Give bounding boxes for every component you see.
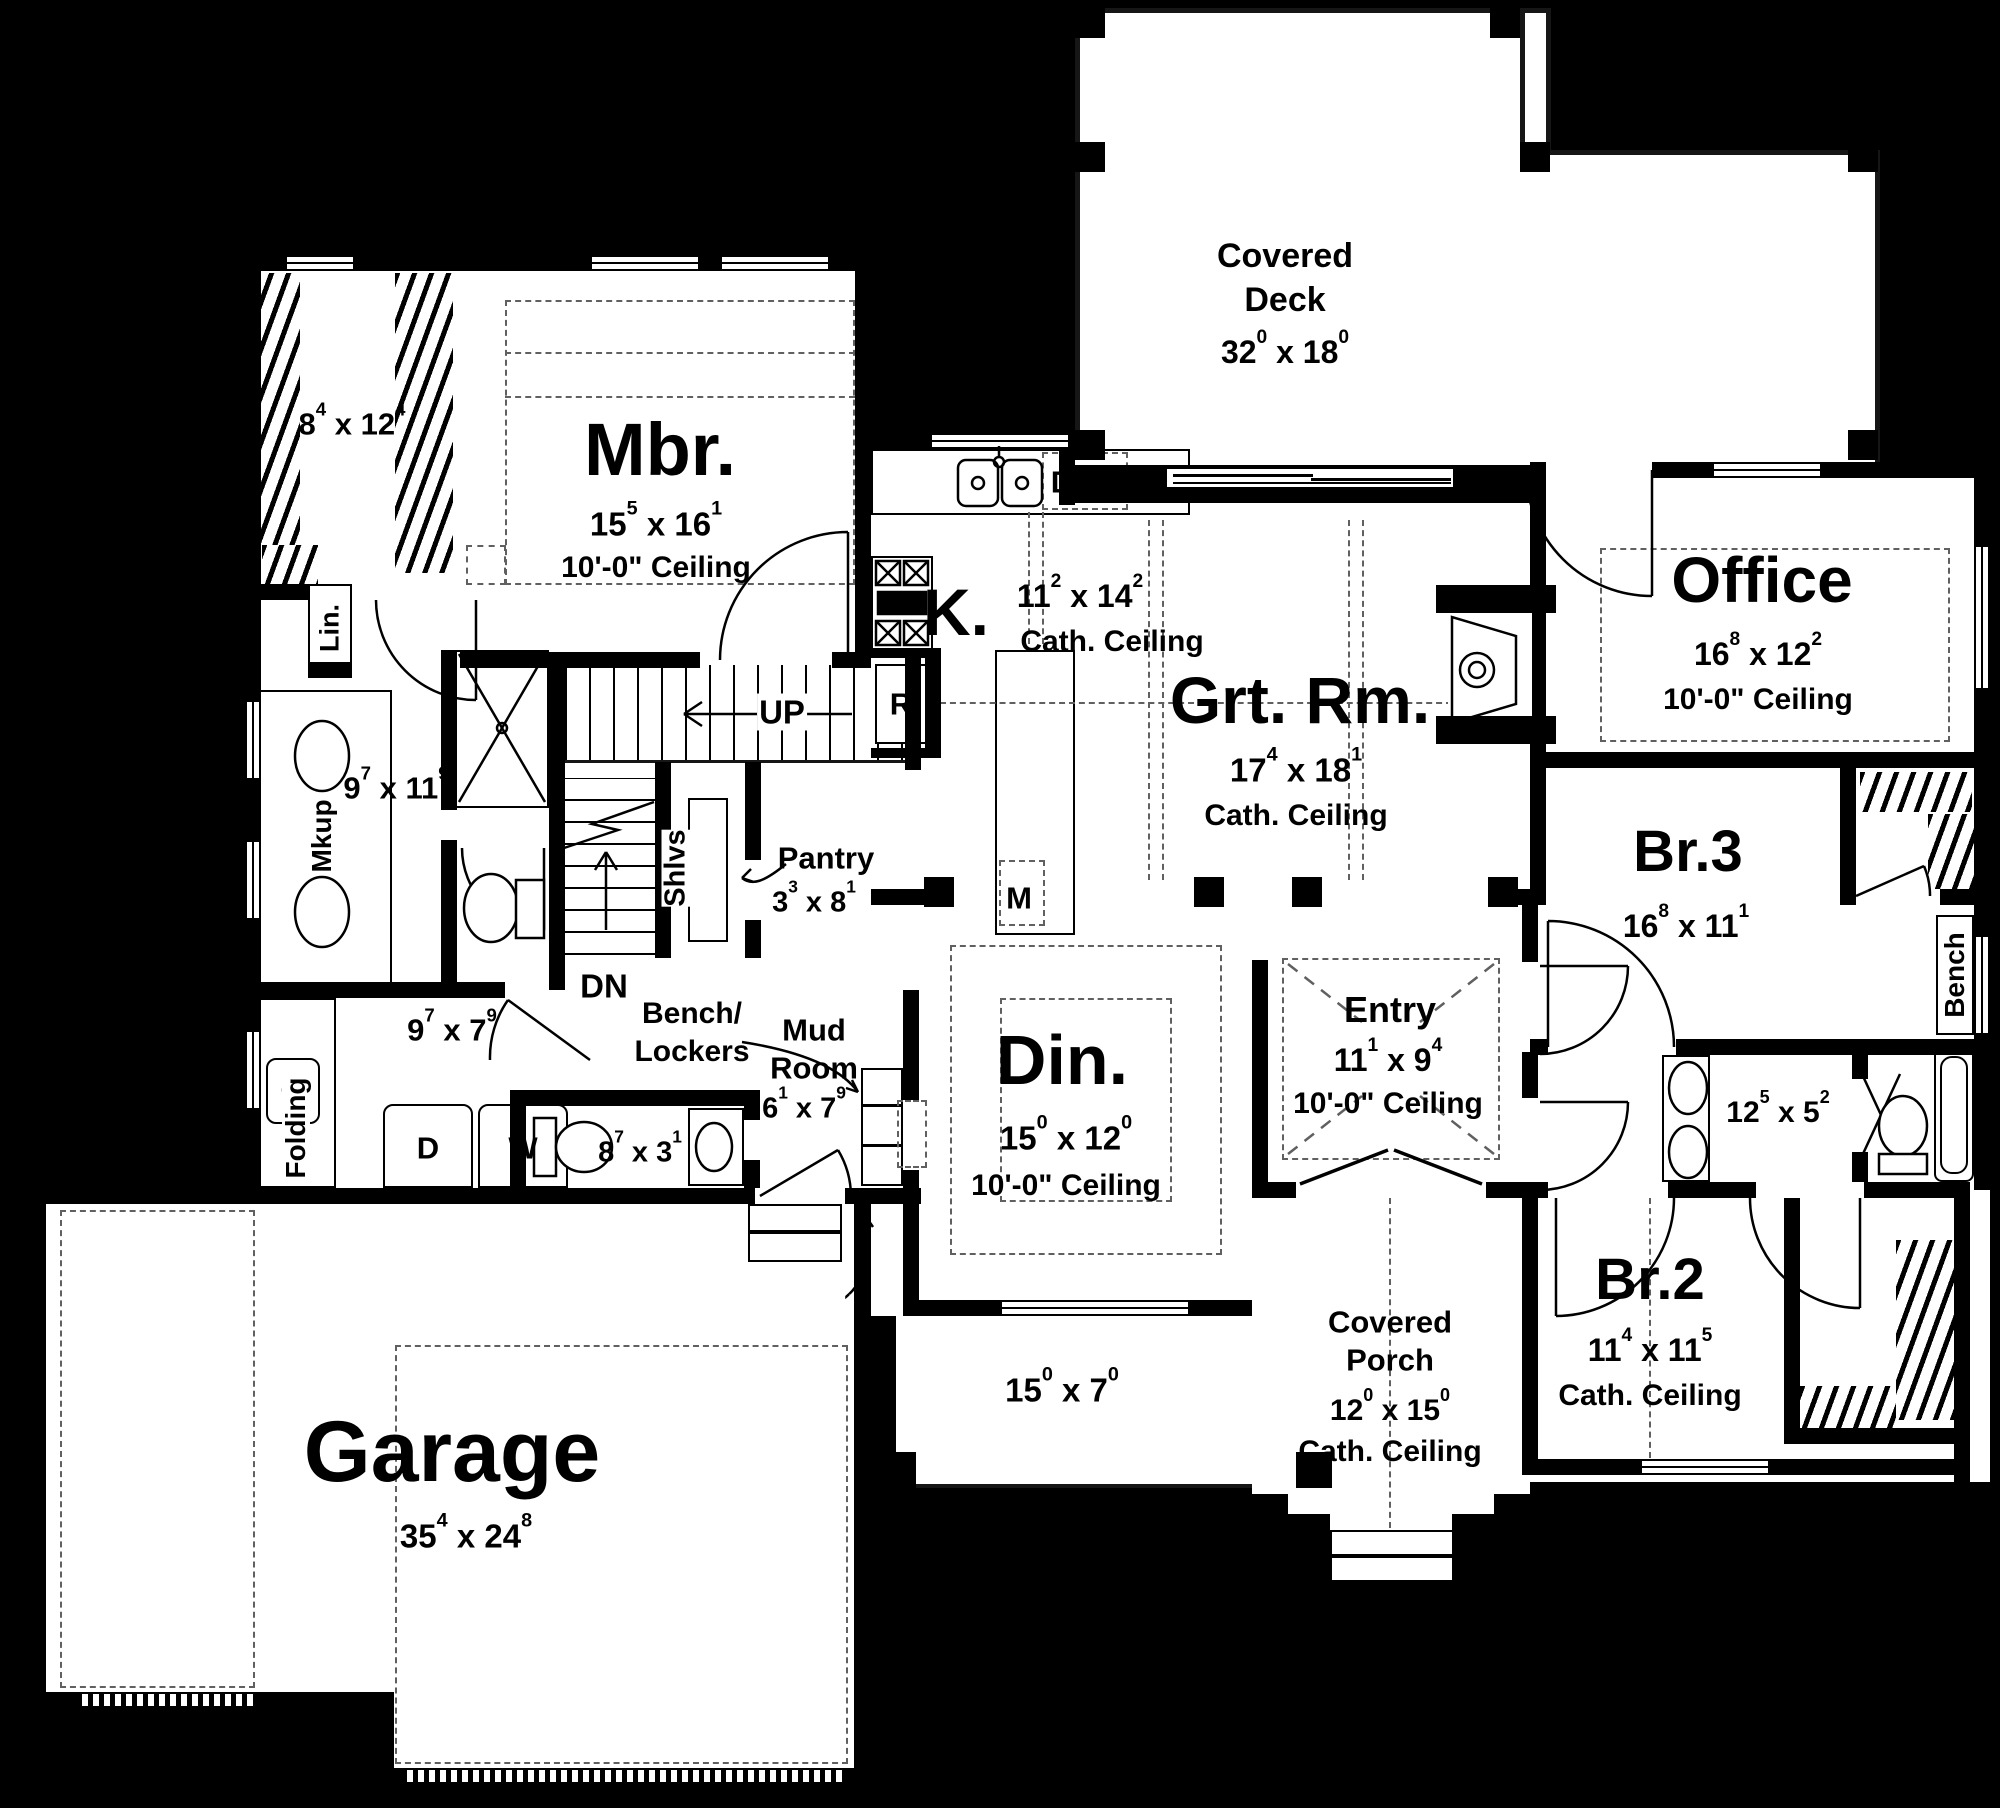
stair-landing-edge xyxy=(565,760,905,763)
powder-sink-counter xyxy=(688,1108,744,1186)
window xyxy=(245,1030,261,1110)
wall xyxy=(1676,1039,1990,1055)
wall xyxy=(855,271,871,666)
wall-post xyxy=(924,877,954,907)
window xyxy=(720,255,830,271)
wall xyxy=(925,658,941,756)
fireplace-surround xyxy=(1436,716,1556,744)
floor-plan: Covered Deck 320 x 180 Mbr. 155 x 161 10… xyxy=(0,0,2000,1808)
deck-rail xyxy=(1520,8,1525,150)
wall xyxy=(744,1160,760,1188)
br3-closet-hatch xyxy=(1860,772,1972,812)
wall xyxy=(308,662,352,678)
wall xyxy=(1530,465,1546,905)
wall xyxy=(1840,752,1856,905)
laundry-dim: 97 x 79 xyxy=(407,1014,497,1045)
shower xyxy=(455,650,549,808)
wall xyxy=(245,982,505,998)
microwave-label: M xyxy=(1006,883,1032,914)
catch-all-niche xyxy=(897,1100,927,1168)
wall xyxy=(510,1090,760,1106)
br3-closet-hatch xyxy=(1928,814,1974,889)
wall xyxy=(745,920,761,958)
wall xyxy=(1784,1198,1800,1444)
window xyxy=(245,700,261,780)
br2-dim: 114 x 115 xyxy=(1588,1334,1713,1366)
wall xyxy=(1252,960,1268,1188)
br3-label: Br.3 xyxy=(1633,823,1743,881)
kitchen-label: K. xyxy=(923,579,989,645)
mbr-ceiling: 10'-0" Ceiling xyxy=(561,553,751,583)
wall xyxy=(1852,1152,1868,1182)
refrigerator-label: R xyxy=(890,689,912,720)
mbr-label: Mbr. xyxy=(584,413,736,487)
br3-dim: 168 x 111 xyxy=(1623,910,1749,942)
porch-post xyxy=(880,1452,916,1488)
wall xyxy=(744,1090,760,1120)
wall-post xyxy=(1488,877,1518,907)
folding-label: Folding xyxy=(282,1077,310,1178)
br2-label: Br.2 xyxy=(1595,1251,1705,1309)
garage-notch xyxy=(30,1708,394,1788)
garage-dim: 354 x 248 xyxy=(400,1520,532,1553)
deck-rail xyxy=(1550,150,1880,155)
kitchen-dim: 112 x 142 xyxy=(1017,580,1143,612)
deck-post xyxy=(1075,142,1105,172)
lockers-label-line2: Lockers xyxy=(634,1037,749,1067)
fireplace-box xyxy=(1448,613,1532,716)
dishwasher-label: D xyxy=(1051,467,1073,498)
wall xyxy=(871,748,941,758)
office-label: Office xyxy=(1671,548,1852,612)
entry-ceiling: 10'-0" Ceiling xyxy=(1293,1089,1483,1119)
bathtub-inner xyxy=(1940,1056,1968,1174)
lockers-label-line1: Bench/ xyxy=(642,999,742,1029)
bed-line xyxy=(505,396,855,398)
garage-door-panel xyxy=(75,1692,255,1708)
catch-all-label: Catch-All xyxy=(720,1291,856,1322)
wall xyxy=(549,660,565,990)
stairs-up-treads xyxy=(565,665,905,762)
deck-rail xyxy=(1546,8,1551,150)
wall xyxy=(1940,889,1990,905)
mudroom-label-line2: Room xyxy=(770,1053,858,1084)
deck-label-line2: Deck xyxy=(1244,283,1325,317)
porch-post xyxy=(1252,1494,1288,1530)
makeup-label: Mkup xyxy=(308,799,336,872)
dining-label: Din. xyxy=(996,1025,1128,1095)
br2-ridge xyxy=(1649,1198,1651,1458)
window xyxy=(1000,1300,1190,1316)
garage-door-swing xyxy=(60,1210,255,1688)
deck-post xyxy=(1848,142,1878,172)
deck-dim: 320 x 180 xyxy=(1221,336,1349,368)
wall xyxy=(1840,752,1990,768)
deck-rail xyxy=(1075,8,1080,465)
mbr-closet-dim: 84 x 124 xyxy=(299,408,406,439)
window xyxy=(1974,935,1990,1035)
deck-post xyxy=(1520,142,1550,172)
br2-ceiling: Cath. Ceiling xyxy=(1558,1381,1741,1411)
fireplace-surround xyxy=(1436,585,1556,613)
wall xyxy=(441,840,457,856)
mbr-dim: 155 x 161 xyxy=(590,508,722,541)
wall xyxy=(832,652,871,668)
mbath-dim: 97 x 119 xyxy=(343,772,448,803)
mudroom-dim: 61 x 79 xyxy=(762,1093,846,1124)
wall xyxy=(745,762,761,860)
wall xyxy=(903,990,919,1100)
br2-closet-hatch xyxy=(1896,1240,1954,1420)
great-room-ceiling: Cath. Ceiling xyxy=(1204,801,1387,831)
dryer-label: D xyxy=(417,1133,439,1164)
deck-post xyxy=(1848,430,1878,460)
catch-all-cabinet xyxy=(748,1204,842,1232)
wall xyxy=(871,648,941,658)
wall xyxy=(245,584,308,600)
catch-all-cabinet xyxy=(748,1232,842,1262)
deck-label-line1: Covered xyxy=(1217,239,1353,273)
garage-label: Garage xyxy=(304,1409,600,1495)
great-room-dim: 174 x 181 xyxy=(1230,754,1362,787)
stairs-down-treads xyxy=(565,778,655,955)
deck-floor-lower xyxy=(1075,150,1880,465)
washer-label: W xyxy=(508,1133,537,1164)
deck-floor-upper xyxy=(1075,8,1550,150)
pantry-shelf xyxy=(688,798,728,942)
wall xyxy=(1840,889,1856,905)
entry-label: Entry xyxy=(1344,992,1436,1028)
wall xyxy=(903,1170,919,1316)
deck-post xyxy=(1490,8,1520,38)
dining-dim: 150 x 120 xyxy=(1000,1122,1132,1155)
linen-label: Lin. xyxy=(317,604,344,652)
deck-post xyxy=(1075,8,1105,38)
office-ceiling: 10'-0" Ceiling xyxy=(1663,685,1853,715)
porch-dim: 120 x 150 xyxy=(1330,1394,1450,1426)
stairs-up-label: UP xyxy=(757,694,807,731)
wall xyxy=(1522,1198,1538,1475)
bath2-vanity xyxy=(1662,1055,1710,1182)
pantry-label: Pantry xyxy=(778,843,874,874)
wall xyxy=(854,1204,870,1784)
wall xyxy=(1530,752,1850,768)
wall xyxy=(30,1188,46,1708)
wall xyxy=(1852,1055,1868,1079)
wall xyxy=(1668,1182,1756,1198)
window xyxy=(1712,462,1822,478)
shelves-label: Shlvs xyxy=(662,829,691,906)
window xyxy=(285,255,355,271)
window xyxy=(1640,1459,1770,1475)
bench-label: Bench xyxy=(1941,932,1969,1018)
office-dim: 168 x 122 xyxy=(1694,638,1822,670)
sliding-door-to-deck xyxy=(1165,467,1455,489)
wall xyxy=(1522,1052,1538,1098)
powder-dim: 87 x 31 xyxy=(598,1137,682,1168)
garage-door-panel xyxy=(400,1768,848,1784)
porch-step xyxy=(1330,1530,1454,1556)
entry-dim: 111 x 94 xyxy=(1334,1044,1443,1076)
window xyxy=(930,433,1070,449)
deck-rail xyxy=(1875,150,1880,465)
window xyxy=(245,840,261,920)
wall xyxy=(1530,1182,1548,1198)
wall xyxy=(871,889,924,905)
wall xyxy=(1252,1182,1296,1198)
window xyxy=(590,255,700,271)
wall xyxy=(30,1188,755,1204)
porch-post xyxy=(1494,1494,1530,1530)
bath2-dim: 125 x 52 xyxy=(1726,1096,1829,1128)
kitchen-ceiling: Cath. Ceiling xyxy=(1020,627,1203,657)
pantry-dim: 33 x 81 xyxy=(772,887,856,918)
porch-label-line1: Covered xyxy=(1328,1307,1452,1338)
nightstand-outline xyxy=(466,545,506,585)
front-door-threshold xyxy=(1296,1182,1486,1198)
wall xyxy=(1522,905,1538,962)
closet-rod-hatch xyxy=(262,545,318,587)
wall xyxy=(1486,1182,1530,1198)
dining-ceiling: 10'-0" Ceiling xyxy=(971,1171,1161,1201)
bed-line xyxy=(505,352,855,354)
wall xyxy=(1784,1428,1970,1444)
wall xyxy=(1530,1039,1548,1055)
small-porch-dim: 150 x 70 xyxy=(1005,1374,1119,1407)
mudroom-label-line1: Mud xyxy=(782,1015,846,1046)
deck-post xyxy=(1075,430,1105,460)
wall xyxy=(460,652,700,668)
wall xyxy=(441,855,457,990)
br2-closet-hatch xyxy=(1800,1386,1896,1428)
stairs-down-label: DN xyxy=(580,970,628,1003)
great-room-label: Grt. Rm. xyxy=(1170,667,1430,733)
deck-rail xyxy=(1075,8,1550,13)
porch-label-line2: Porch xyxy=(1346,1345,1434,1376)
window xyxy=(1974,545,1990,690)
ceiling-beam xyxy=(1148,520,1164,880)
porch-step xyxy=(1330,1556,1454,1582)
wall-post xyxy=(1194,877,1224,907)
wall-post xyxy=(1292,877,1322,907)
porch-edge xyxy=(880,1484,1252,1488)
porch-ceiling: Cath. Ceiling xyxy=(1298,1437,1481,1467)
